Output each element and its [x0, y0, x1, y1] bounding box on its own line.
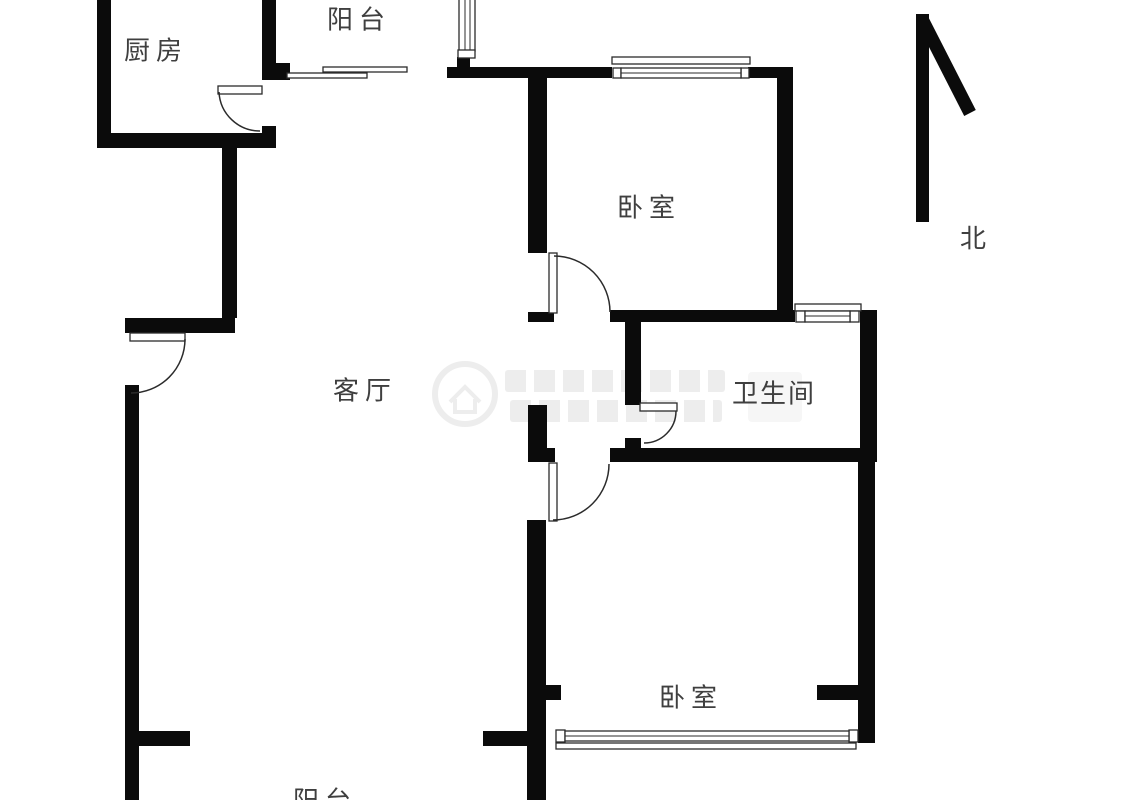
kitchen-label: 厨房: [118, 31, 188, 68]
living-room-label: 客厅: [327, 371, 397, 408]
bedroom-south-label: 卧室: [653, 678, 723, 715]
balcony-top-label: 阳台: [321, 0, 391, 37]
bedroom-north-label: 卧室: [611, 188, 681, 225]
balcony-bottom-label: 阳台: [287, 781, 357, 800]
north-label: 北: [960, 219, 986, 256]
bathroom-label: 卫生间: [730, 374, 816, 411]
labels-layer: 厨房 阳台 卧室 客厅 卫生间 卧室 阳台 北: [0, 0, 1125, 800]
floor-plan: 厨房 阳台 卧室 客厅 卫生间 卧室 阳台 北: [0, 0, 1125, 800]
